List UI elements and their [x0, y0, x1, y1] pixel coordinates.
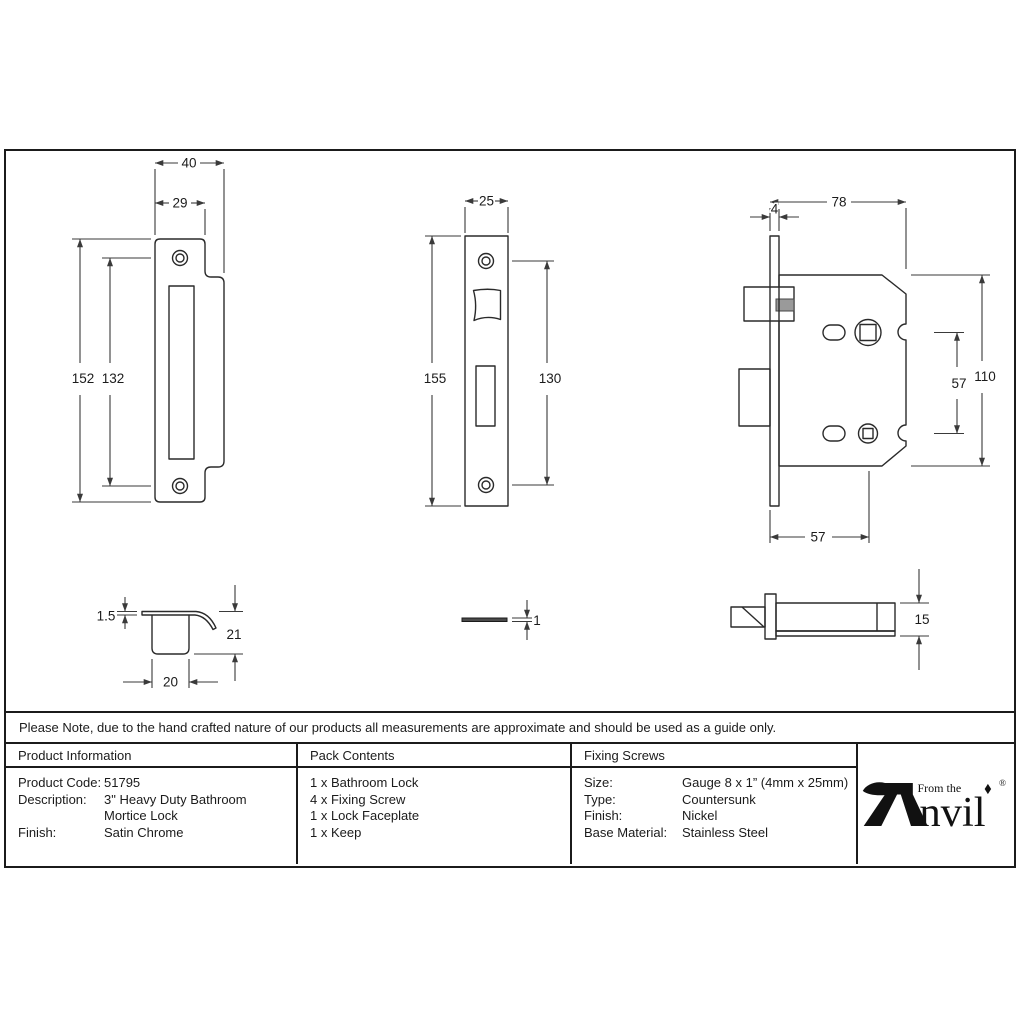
keep-overall-height-dim: 152: [72, 371, 95, 386]
pack-item: 4 x Fixing Screw: [310, 792, 570, 809]
brand-logo-cell: From the nvil ®: [858, 744, 1014, 864]
keep-plate-thickness-dim: 1.5: [97, 609, 116, 624]
faceplate-width-dim: 25: [479, 194, 494, 209]
screw-type-label: Type:: [584, 792, 682, 809]
pack-contents-column: Pack Contents 1 x Bathroom Lock 4 x Fixi…: [298, 744, 572, 864]
pack-item: 1 x Bathroom Lock: [310, 775, 570, 792]
keep-overall-depth-dim: 21: [226, 627, 241, 642]
table-row: Size: Gauge 8 x 1” (4mm x 25mm): [584, 775, 856, 792]
spec-table: Product Information Product Code: 51795 …: [6, 742, 1014, 864]
table-row: Base Material: Stainless Steel: [584, 825, 856, 842]
table-row: Finish: Nickel: [584, 808, 856, 825]
lock-body-view: 78 4 110 57: [739, 195, 996, 545]
pack-contents-header: Pack Contents: [298, 744, 570, 768]
lock-profile-base-strip: [776, 631, 895, 636]
logo-brand-text: nvil: [919, 789, 985, 832]
keep-slot: [169, 286, 194, 459]
lock-faceplate-strip: [770, 236, 779, 506]
faceplate-screw-hole-bottom: [479, 478, 494, 493]
table-row: Description: 3" Heavy Duty Bathroom: [18, 792, 296, 809]
spindle-square-hole: [860, 325, 876, 341]
keep-profile-view: 1.5 21 20: [97, 585, 243, 690]
keep-screw-hole-bottom-inner: [176, 482, 184, 490]
bottom-follower: [859, 424, 878, 443]
table-row: Type: Countersunk: [584, 792, 856, 809]
product-code-value: 51795: [104, 775, 296, 792]
keep-overall-width-dim: 40: [181, 156, 196, 171]
faceplate-front-view: 25 155 130: [424, 194, 562, 507]
pack-item: 1 x Lock Faceplate: [310, 808, 570, 825]
keep-profile-plate: [142, 612, 216, 630]
description-label: Description:: [18, 792, 104, 809]
spindle-follower: [855, 320, 881, 346]
bottom-square-hole: [863, 429, 873, 439]
lock-case-thickness-dim: 15: [914, 612, 929, 627]
spec-sheet-page: 40 29 152 132: [0, 0, 1024, 1024]
keep-screw-hole-bottom: [173, 479, 188, 494]
keep-inner-height-dim: 132: [102, 371, 125, 386]
faceplate-thickness-dim: 1: [533, 613, 541, 628]
technical-drawing-svg: 40 29 152 132: [6, 151, 1014, 711]
lock-overall-depth-dim: 78: [831, 195, 846, 210]
faceplate-latch-opening: [474, 289, 501, 320]
faceplate-screw-hole-top: [479, 254, 494, 269]
keep-screw-hole-top: [173, 251, 188, 266]
spec-sheet-border: 40 29 152 132: [4, 149, 1016, 868]
product-information-column: Product Information Product Code: 51795 …: [6, 744, 298, 864]
faceplate-profile-view: 1: [462, 600, 541, 640]
lock-follower-centres-dim: 57: [951, 376, 966, 391]
keep-front-view: 40 29 152 132: [72, 156, 224, 503]
faceplate-edge-bar: [462, 618, 507, 622]
lock-faceplate-thickness-dim: 4: [771, 202, 779, 217]
measurement-note-row: Please Note, due to the hand crafted nat…: [6, 711, 1014, 742]
pack-item: 1 x Keep: [310, 825, 570, 842]
fixing-screws-column: Fixing Screws Size: Gauge 8 x 1” (4mm x …: [572, 744, 858, 864]
lock-profile-view: 15: [731, 569, 930, 670]
lock-body-outline: [779, 275, 906, 466]
latch-bevel-edge: [742, 607, 764, 627]
table-row: Product Code: 51795: [18, 775, 296, 792]
finish-value: Satin Chrome: [104, 825, 296, 842]
fixing-screws-header: Fixing Screws: [572, 744, 856, 768]
lock-profile-faceplate: [765, 594, 776, 639]
description-label-spacer: [18, 808, 104, 825]
product-code-label: Product Code:: [18, 775, 104, 792]
keep-plate-width-dim: 29: [172, 196, 187, 211]
lock-backset-dim: 57: [810, 530, 825, 545]
product-information-header: Product Information: [6, 744, 296, 768]
faceplate-outline: [465, 236, 508, 506]
faceplate-screw-hole-bottom-inner: [482, 481, 490, 489]
description-value-line1: 3" Heavy Duty Bathroom: [104, 792, 296, 809]
faceplate-height-dim: 155: [424, 371, 447, 386]
finish-label: Finish:: [18, 825, 104, 842]
lock-body-height-dim: 110: [974, 369, 996, 384]
screw-finish-label: Finish:: [584, 808, 682, 825]
table-row: Finish: Satin Chrome: [18, 825, 296, 842]
screw-finish-value: Nickel: [682, 808, 856, 825]
keep-box-width-dim: 20: [163, 675, 178, 690]
screw-size-label: Size:: [584, 775, 682, 792]
technical-drawing-area: 40 29 152 132: [6, 151, 1014, 711]
keep-profile-box: [152, 615, 189, 654]
faceplate-bolt-opening: [476, 366, 495, 426]
screw-size-value: Gauge 8 x 1” (4mm x 25mm): [682, 775, 856, 792]
note-text: Please Note, due to the hand crafted nat…: [19, 720, 776, 735]
screw-type-value: Countersunk: [682, 792, 856, 809]
from-the-anvil-logo: From the nvil ®: [860, 776, 1012, 832]
screw-material-label: Base Material:: [584, 825, 682, 842]
registered-trademark-icon: ®: [999, 779, 1006, 789]
description-value-line2: Mortice Lock: [104, 808, 296, 825]
deadbolt: [739, 369, 770, 426]
fixing-slot-top: [823, 325, 845, 340]
faceplate-screw-hole-top-inner: [482, 257, 490, 265]
screw-material-value: Stainless Steel: [682, 825, 856, 842]
keep-screw-hole-top-inner: [176, 254, 184, 262]
faceplate-screw-centres-dim: 130: [539, 371, 562, 386]
fixing-slot-bottom: [823, 426, 845, 441]
keep-plate-outline: [155, 239, 224, 502]
table-row: Mortice Lock: [18, 808, 296, 825]
